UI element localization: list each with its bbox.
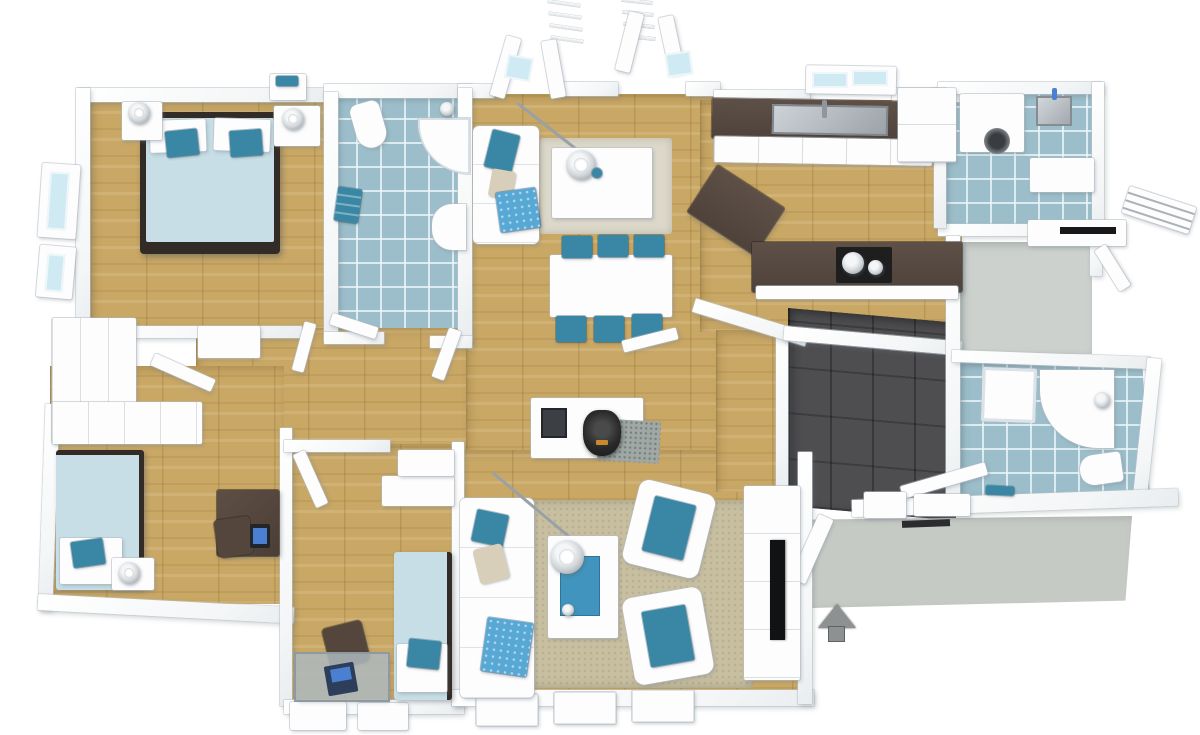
- hall-sideboard: [198, 326, 260, 358]
- floor-plan-render: [0, 0, 1200, 735]
- bath-mat: [986, 485, 1014, 495]
- toilet: [1078, 451, 1124, 487]
- table-lamp: [118, 562, 140, 584]
- juliet-railing: [549, 12, 581, 19]
- french-door-leaf: [615, 11, 644, 73]
- wall: [284, 440, 390, 452]
- dining-chair: [634, 235, 664, 257]
- wardrobe-cabinet: [382, 476, 454, 506]
- window-glass: [812, 72, 848, 88]
- wall: [560, 82, 618, 96]
- corridor-floor: [716, 330, 780, 492]
- wall: [1092, 82, 1104, 234]
- shower-cabin: [981, 367, 1037, 423]
- kitchen-sink: [772, 104, 889, 136]
- juliet-railing: [550, 24, 582, 31]
- dotted-cushion: [495, 187, 540, 232]
- wardrobe-cabinet: [398, 450, 454, 476]
- dining-chair: [556, 316, 586, 342]
- sink-faucet: [1052, 88, 1057, 100]
- kitchen-faucet: [822, 100, 827, 118]
- drying-rack: [1121, 186, 1196, 234]
- wall: [938, 82, 1102, 94]
- window: [554, 692, 616, 724]
- doormat: [1060, 227, 1116, 234]
- window: [632, 690, 694, 722]
- utility-sink: [1036, 96, 1072, 126]
- window: [358, 703, 408, 730]
- dome-lamp: [566, 150, 596, 180]
- wall: [776, 332, 788, 490]
- entrance-arrow-stem: [829, 627, 844, 641]
- dining-chair: [594, 316, 624, 342]
- teal-towels: [276, 76, 298, 86]
- cup: [562, 604, 574, 616]
- table-lamp: [128, 102, 150, 124]
- pot: [842, 252, 864, 274]
- juliet-railing: [622, 0, 652, 5]
- armchair-cushion: [641, 605, 694, 668]
- monitor-screen: [253, 528, 267, 544]
- firebox: [541, 408, 567, 438]
- teal-cushion: [70, 538, 105, 568]
- french-door-leaf: [541, 39, 566, 99]
- vanity-faucet: [1094, 392, 1110, 408]
- washbasin: [432, 204, 466, 250]
- teal-cushion: [407, 638, 442, 669]
- dining-table: [550, 255, 672, 317]
- glass-panel: [504, 54, 534, 82]
- dining-chair: [562, 236, 592, 258]
- juliet-railing: [548, 0, 580, 7]
- wood-stove: [583, 410, 621, 456]
- window: [290, 702, 346, 730]
- teal-cushion: [471, 509, 509, 547]
- window-glass: [44, 253, 65, 292]
- teal-cup: [592, 168, 602, 178]
- storage-cabinet: [1030, 158, 1094, 192]
- desk-chair: [214, 516, 255, 559]
- towel-rail: [334, 186, 362, 223]
- window-glass: [46, 171, 70, 230]
- window-glass: [852, 70, 888, 86]
- storage-box: [914, 494, 970, 516]
- entrance-arrow-icon: [818, 604, 856, 628]
- dining-chair: [598, 235, 628, 257]
- washing-machine-door: [984, 128, 1010, 154]
- dome-lamp: [550, 540, 584, 574]
- porch-floor: [806, 516, 1132, 608]
- table-lamp: [282, 108, 304, 130]
- stove-label: [596, 440, 608, 445]
- shower-head: [440, 102, 454, 116]
- window: [476, 694, 538, 726]
- glass-panel: [664, 50, 693, 77]
- island-base: [756, 286, 958, 299]
- dotted-cushion: [480, 617, 533, 677]
- pot: [868, 260, 883, 275]
- wall: [280, 428, 292, 706]
- wardrobe: [52, 402, 202, 444]
- fridge-cabinet: [898, 88, 956, 162]
- wall: [324, 84, 472, 98]
- storage-box: [864, 492, 906, 518]
- tv-screen: [770, 540, 785, 640]
- wall: [76, 88, 90, 340]
- teal-cushion: [229, 129, 263, 157]
- teal-cushion: [165, 128, 200, 157]
- entry-hall-floor: [960, 242, 1092, 354]
